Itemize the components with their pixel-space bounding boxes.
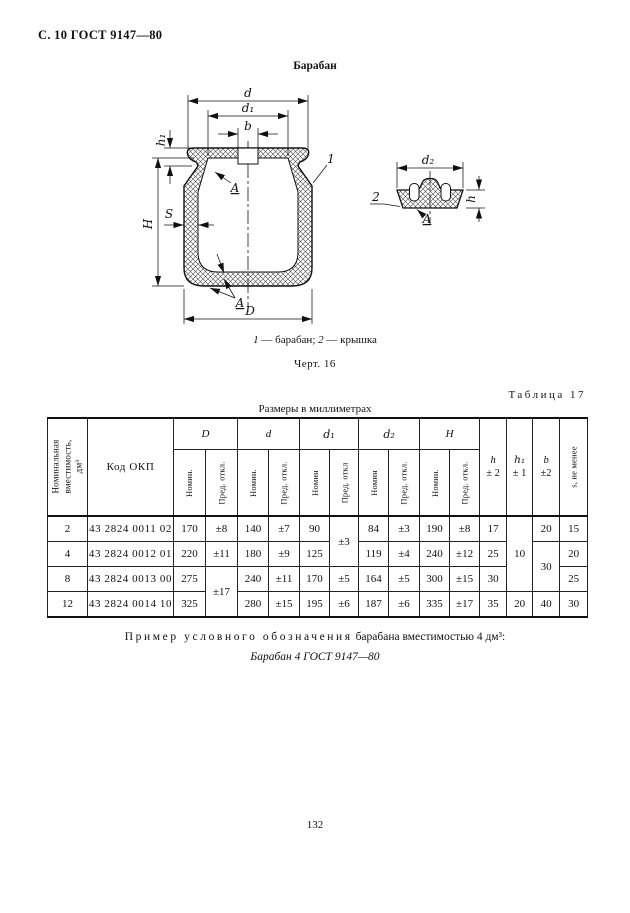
table-row: 4 43 2824 0012 01 220 ±11 180 ±9 125 119… — [48, 542, 588, 567]
callout-A-lid: A — [417, 210, 432, 227]
figure-number: Черт. 16 — [0, 358, 630, 370]
cell-d2-tol: ±5 — [389, 567, 420, 592]
callout-A-top: A — [215, 172, 240, 195]
cell-h: 17 — [480, 516, 507, 542]
figure-caption: 1 — барабан; 2 — крышка — [0, 334, 630, 346]
cell-capacity: 12 — [48, 592, 88, 618]
cell-d-nom: 140 — [238, 516, 269, 542]
col-header-s: s, не менее — [560, 418, 588, 516]
cell-d1-tol: ±5 — [330, 567, 359, 592]
cell-s: 20 — [560, 542, 588, 567]
callout-part2: 2 — [370, 190, 400, 207]
lid-outline — [397, 178, 463, 208]
subheader-d1-tol: Пред. откл — [330, 450, 359, 517]
label-part2: 2 — [371, 190, 380, 204]
subheader-d2-nom: Номин — [359, 450, 389, 517]
caption-part1-text: — барабан; — [259, 334, 319, 346]
cell-d2-nom: 164 — [359, 567, 389, 592]
cell-d2-nom: 187 — [359, 592, 389, 618]
callout-part1: 1 — [313, 152, 335, 183]
cell-d-nom: 280 — [238, 592, 269, 618]
cell-D-tol: ±8 — [206, 516, 238, 542]
cell-d-tol: ±7 — [269, 516, 300, 542]
col-header-h: h± 2 — [480, 418, 507, 516]
label-part1: 1 — [327, 152, 335, 166]
cell-D-nom: 275 — [174, 567, 206, 592]
table-caption: Таблица 17 — [508, 389, 586, 401]
cell-d2-tol: ±3 — [389, 516, 420, 542]
col-header-D: D — [174, 418, 238, 450]
label-H: H — [141, 218, 155, 230]
drawing-svg: d d₁ b h₁ — [138, 84, 498, 334]
drum-slot — [238, 149, 258, 164]
cell-h: 30 — [480, 567, 507, 592]
label-h1: h₁ — [154, 134, 168, 147]
col-header-d: d — [238, 418, 300, 450]
cell-capacity: 4 — [48, 542, 88, 567]
page-number: 132 — [0, 819, 630, 831]
label-A-bottom: A — [235, 296, 245, 310]
label-A-top: A — [230, 181, 240, 195]
col-header-d1: d₁ — [300, 418, 359, 450]
subheader-H-nom: Номин. — [420, 450, 450, 517]
technical-drawing: d d₁ b h₁ — [138, 84, 498, 334]
subheader-d1-nom: Номин — [300, 450, 330, 517]
cell-D-nom: 170 — [174, 516, 206, 542]
cell-d-tol: ±11 — [269, 567, 300, 592]
cell-D-nom: 325 — [174, 592, 206, 618]
cell-s: 15 — [560, 516, 588, 542]
cell-s: 30 — [560, 592, 588, 618]
cell-d1-nom: 195 — [300, 592, 330, 618]
subheader-D-nom: Номин. — [174, 450, 206, 517]
cell-H-nom: 300 — [420, 567, 450, 592]
cell-s: 25 — [560, 567, 588, 592]
col-header-d2: d₂ — [359, 418, 420, 450]
table-units: Размеры в миллиметрах — [0, 403, 630, 415]
cell-d-nom: 240 — [238, 567, 269, 592]
cell-D-tol: ±17 — [206, 567, 238, 618]
subheader-d2-tol: Пред. откл. — [389, 450, 420, 517]
example-rest: барабана вместимостью 4 дм³: — [353, 631, 506, 643]
cell-d2-tol: ±6 — [389, 592, 420, 618]
table-row: 12 43 2824 0014 10 325 280 ±15 195 ±6 18… — [48, 592, 588, 618]
label-d1: d₁ — [242, 101, 255, 115]
table-row: 8 43 2824 0013 00 275 ±17 240 ±11 170 ±5… — [48, 567, 588, 592]
example-text: Пример условного обозначения барабана вм… — [0, 631, 630, 643]
dim-h: h — [464, 176, 485, 222]
example-lead: Пример условного обозначения — [125, 631, 353, 643]
label-S: S — [165, 207, 173, 221]
cell-okp: 43 2824 0011 02 — [88, 516, 174, 542]
cell-d1-tol: ±3 — [330, 516, 359, 567]
subheader-d-nom: Номин. — [238, 450, 269, 517]
label-b: b — [244, 119, 252, 133]
dim-h1: h₁ — [154, 130, 192, 184]
cell-H-tol: ±17 — [450, 592, 480, 618]
cell-h1: 20 — [507, 592, 533, 618]
cell-b: 20 — [533, 516, 560, 542]
cell-h: 35 — [480, 592, 507, 618]
subheader-d-tol: Пред. откл. — [269, 450, 300, 517]
cell-d2-nom: 84 — [359, 516, 389, 542]
cell-okp: 43 2824 0014 10 — [88, 592, 174, 618]
col-header-b: b±2 — [533, 418, 560, 516]
cell-d1-nom: 90 — [300, 516, 330, 542]
cell-d2-tol: ±4 — [389, 542, 420, 567]
document-page: С. 10 ГОСТ 9147—80 Барабан — [0, 0, 630, 913]
cell-H-tol: ±15 — [450, 567, 480, 592]
label-h: h — [464, 195, 478, 203]
cell-D-nom: 220 — [174, 542, 206, 567]
subheader-H-tol: Пред. откл. — [450, 450, 480, 517]
cell-H-nom: 240 — [420, 542, 450, 567]
cell-okp: 43 2824 0012 01 — [88, 542, 174, 567]
col-header-capacity: Номинальная вместимость, дм³ — [48, 418, 88, 516]
cell-d1-nom: 125 — [300, 542, 330, 567]
cell-d1-nom: 170 — [300, 567, 330, 592]
page-header: С. 10 ГОСТ 9147—80 — [38, 28, 162, 43]
figure-title: Барабан — [0, 60, 630, 72]
cell-d-tol: ±15 — [269, 592, 300, 618]
caption-part2-text: — крышка — [324, 334, 377, 346]
label-d: d — [244, 86, 252, 100]
col-header-H: Н — [420, 418, 480, 450]
cell-d1-tol: ±6 — [330, 592, 359, 618]
cell-H-tol: ±12 — [450, 542, 480, 567]
cell-b: 40 — [533, 592, 560, 618]
label-A-lid: A — [422, 212, 432, 226]
cell-d2-nom: 119 — [359, 542, 389, 567]
cell-h: 25 — [480, 542, 507, 567]
label-D: D — [244, 304, 255, 318]
cell-okp: 43 2824 0013 00 — [88, 567, 174, 592]
cell-H-tol: ±8 — [450, 516, 480, 542]
drum-section — [184, 141, 312, 312]
cell-h1: 10 — [507, 516, 533, 592]
cell-D-tol: ±11 — [206, 542, 238, 567]
dim-D: D — [184, 289, 312, 324]
subheader-D-tol: Пред. откл. — [206, 450, 238, 517]
designation-text: Барабан 4 ГОСТ 9147—80 — [0, 651, 630, 663]
lid-groove-right — [441, 184, 451, 202]
cell-H-nom: 335 — [420, 592, 450, 618]
label-d2: d₂ — [422, 153, 435, 167]
cell-capacity: 8 — [48, 567, 88, 592]
table-row: 2 43 2824 0011 02 170 ±8 140 ±7 90 ±3 84… — [48, 516, 588, 542]
cell-d-tol: ±9 — [269, 542, 300, 567]
cell-b: 30 — [533, 542, 560, 592]
cell-H-nom: 190 — [420, 516, 450, 542]
col-header-h1: h₁± 1 — [507, 418, 533, 516]
cell-capacity: 2 — [48, 516, 88, 542]
dimensions-table: Номинальная вместимость, дм³ Код ОКП D d… — [47, 417, 588, 618]
col-header-okp: Код ОКП — [88, 418, 174, 516]
cell-d-nom: 180 — [238, 542, 269, 567]
lid-groove-left — [410, 184, 420, 202]
